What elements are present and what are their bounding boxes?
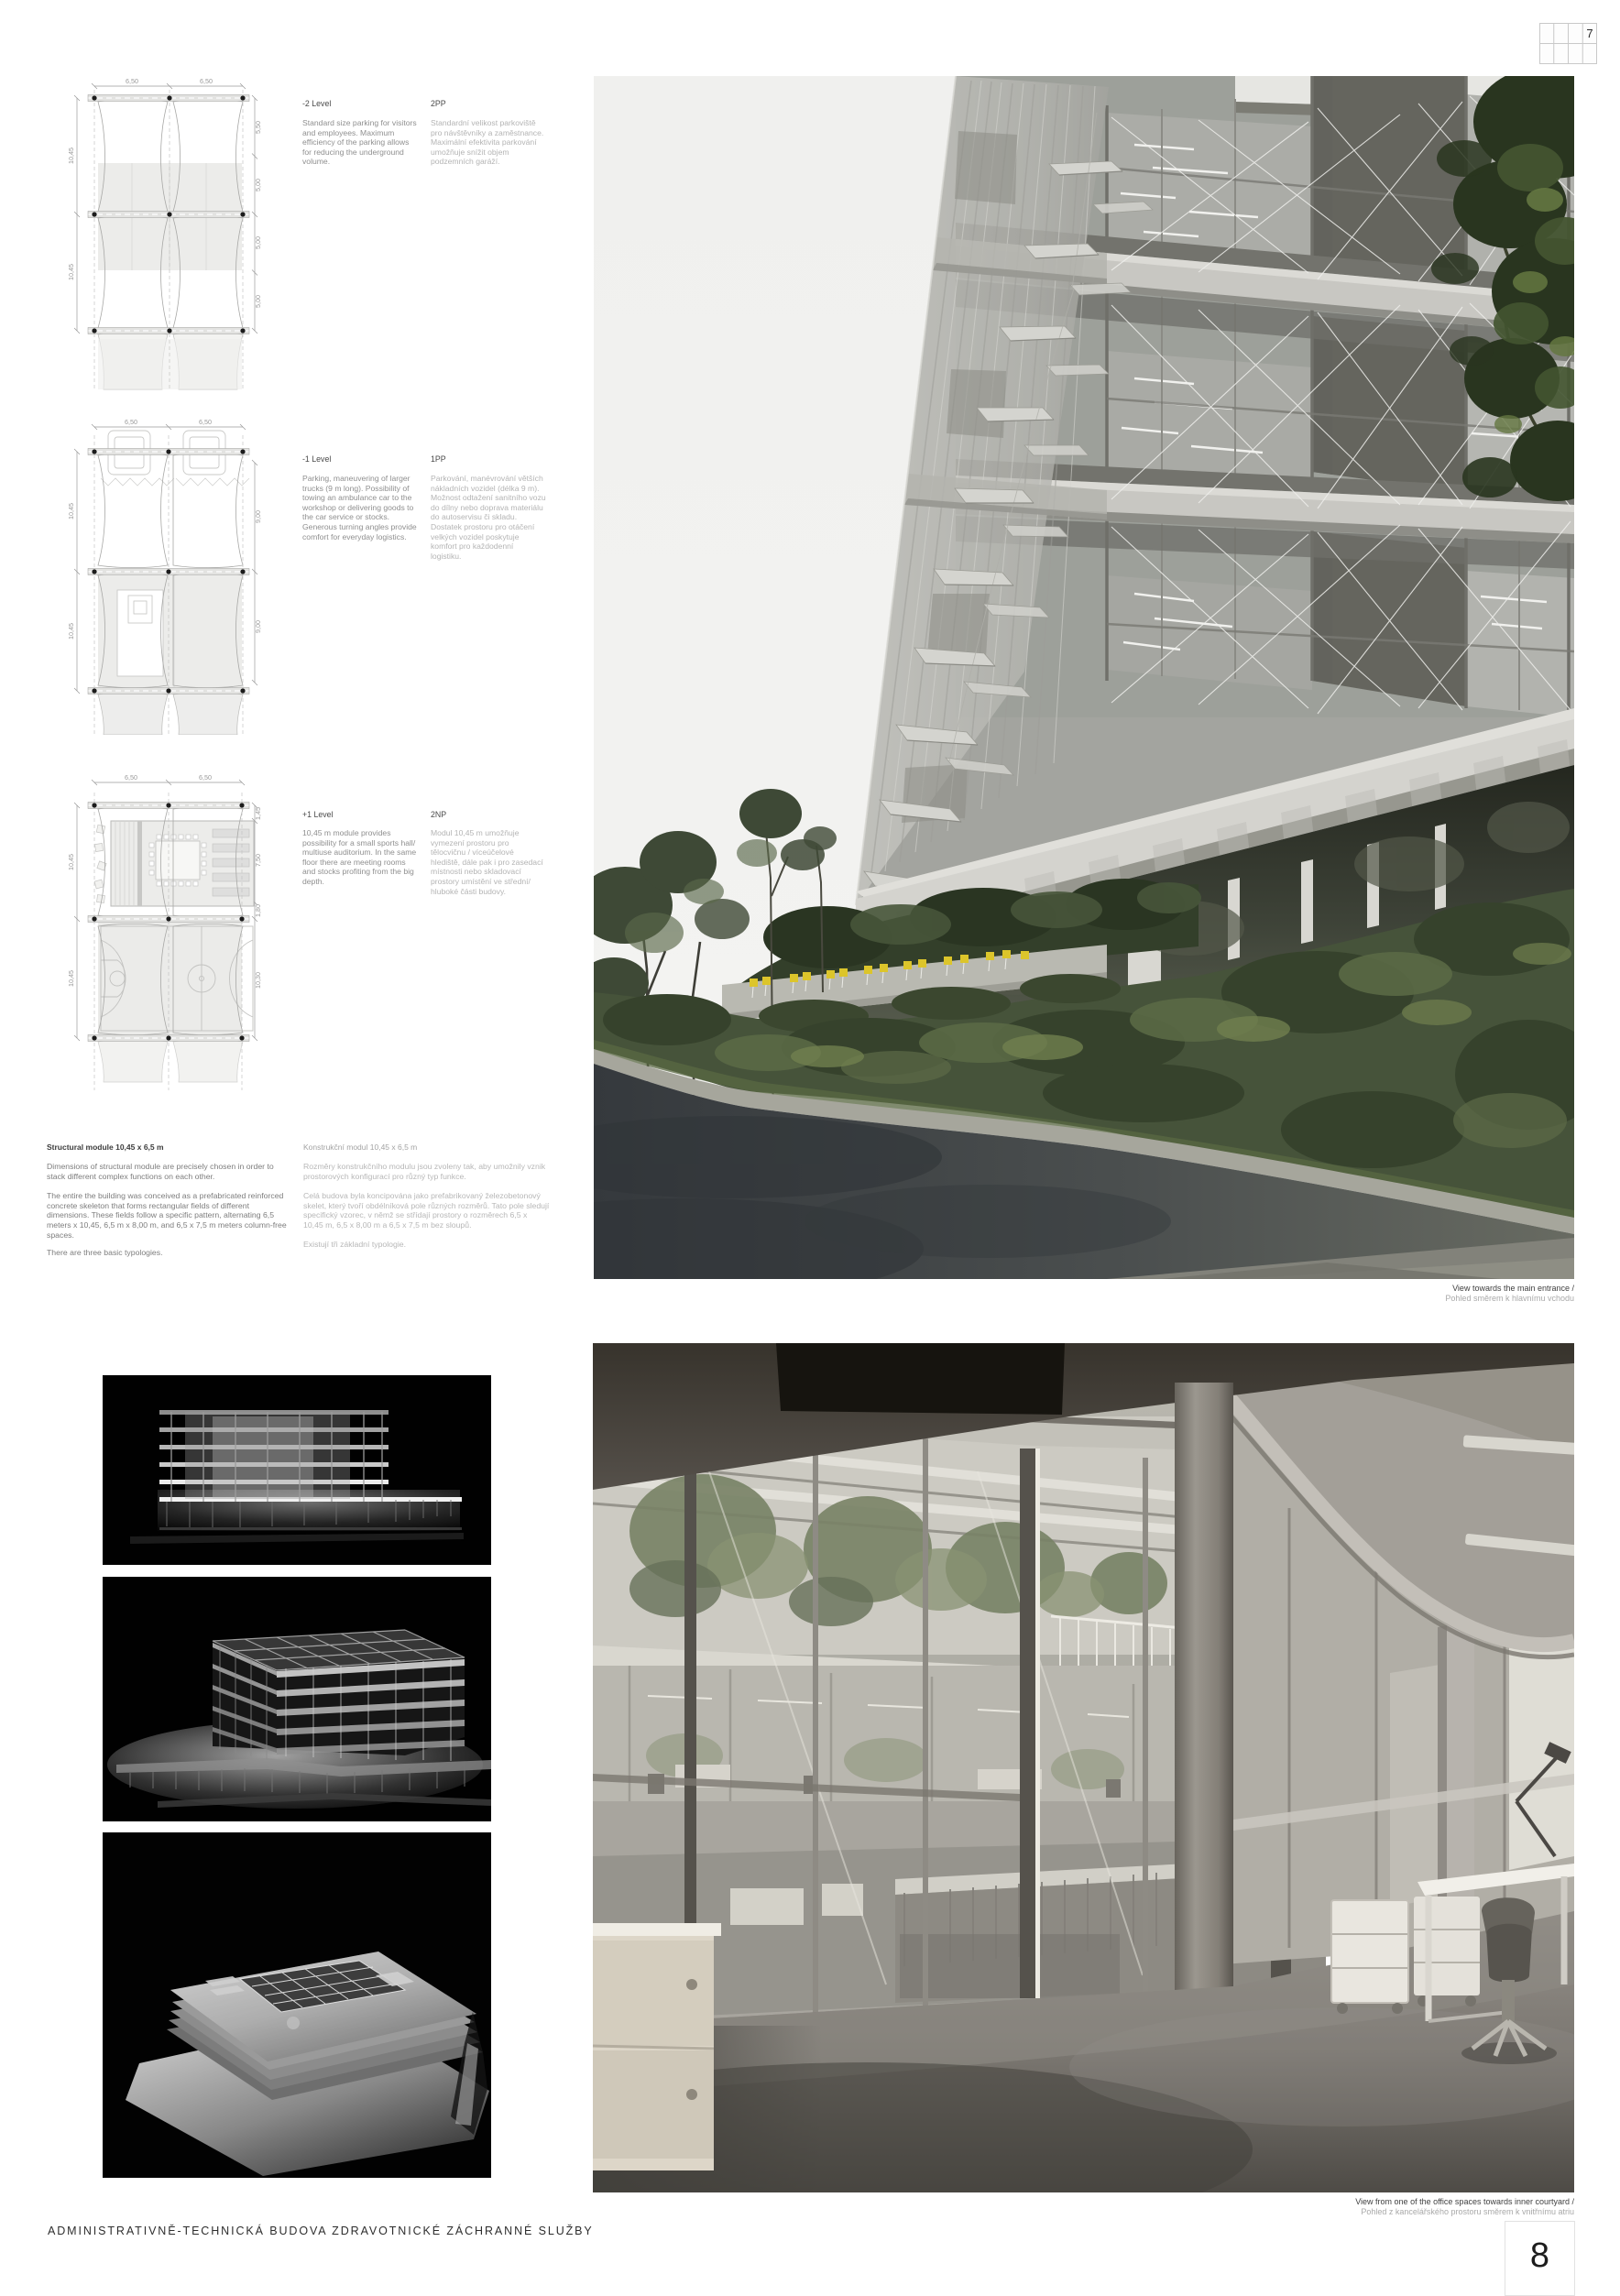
svg-text:1,45: 1,45	[254, 807, 262, 820]
svg-text:9,00: 9,00	[254, 510, 262, 523]
svg-text:7: 7	[1586, 27, 1593, 40]
svg-text:6,50: 6,50	[199, 774, 212, 782]
svg-text:6,50: 6,50	[125, 418, 137, 426]
svg-text:10,45: 10,45	[67, 148, 75, 164]
svg-text:1,80: 1,80	[254, 904, 262, 917]
svg-text:10,45: 10,45	[67, 854, 75, 870]
svg-text:9,00: 9,00	[254, 620, 262, 633]
svg-text:7,50: 7,50	[254, 854, 262, 867]
svg-text:6,50: 6,50	[199, 418, 212, 426]
svg-text:6,50: 6,50	[125, 774, 137, 782]
svg-text:5,00: 5,00	[254, 236, 262, 249]
svg-text:10,45: 10,45	[67, 970, 75, 987]
svg-text:10,45: 10,45	[67, 264, 75, 280]
svg-text:10,30: 10,30	[254, 972, 262, 989]
svg-text:5,50: 5,50	[254, 121, 262, 134]
svg-text:6,50: 6,50	[126, 78, 138, 85]
svg-text:6,50: 6,50	[200, 78, 213, 85]
svg-text:5,00: 5,00	[254, 295, 262, 308]
svg-text:10,45: 10,45	[67, 503, 75, 519]
svg-text:5,00: 5,00	[254, 179, 262, 191]
svg-text:10,45: 10,45	[67, 623, 75, 640]
